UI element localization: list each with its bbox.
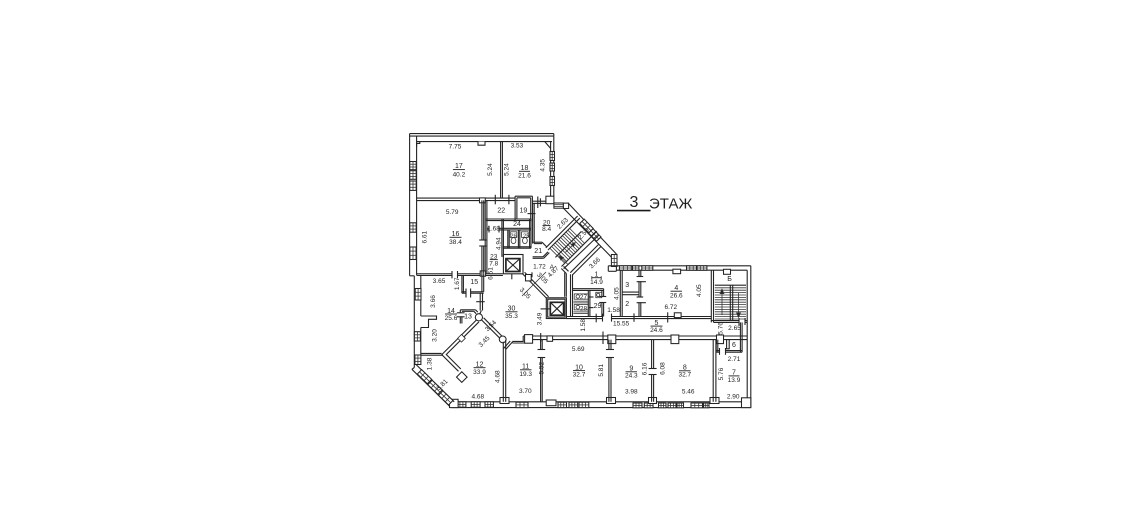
svg-text:24.3: 24.3: [625, 373, 638, 380]
svg-text:3: 3: [630, 194, 639, 211]
svg-text:4.05: 4.05: [696, 284, 703, 297]
svg-text:6: 6: [732, 342, 736, 349]
svg-text:25: 25: [523, 234, 529, 240]
svg-text:3: 3: [625, 282, 629, 289]
svg-text:4.35: 4.35: [540, 159, 547, 172]
svg-text:4.68: 4.68: [495, 370, 502, 383]
svg-text:1.58: 1.58: [607, 307, 620, 314]
svg-text:6.16: 6.16: [641, 362, 648, 375]
svg-text:26.6: 26.6: [670, 292, 683, 299]
svg-text:40.2: 40.2: [453, 171, 466, 178]
svg-text:3.66: 3.66: [430, 295, 437, 308]
svg-text:15.55: 15.55: [613, 321, 630, 328]
svg-text:32.7: 32.7: [573, 372, 586, 379]
svg-text:2.90: 2.90: [727, 393, 740, 400]
svg-text:5.76: 5.76: [718, 322, 725, 335]
svg-text:29: 29: [594, 303, 602, 310]
svg-text:6.72: 6.72: [664, 304, 677, 311]
svg-text:7.75: 7.75: [449, 143, 462, 150]
svg-text:3.05: 3.05: [518, 287, 532, 301]
svg-text:3.98: 3.98: [625, 389, 638, 396]
svg-text:24: 24: [513, 221, 521, 228]
svg-text:13.9: 13.9: [728, 377, 741, 384]
svg-text:3.65: 3.65: [433, 278, 446, 285]
svg-text:28: 28: [580, 306, 588, 313]
svg-text:14.9: 14.9: [590, 279, 603, 286]
svg-text:6.51: 6.51: [488, 267, 495, 280]
svg-text:21.6: 21.6: [518, 173, 531, 180]
svg-text:1.38: 1.38: [426, 357, 433, 370]
svg-text:26: 26: [510, 234, 516, 240]
svg-text:5.69: 5.69: [572, 346, 585, 353]
svg-text:22: 22: [497, 208, 505, 215]
svg-text:4.05: 4.05: [613, 287, 620, 300]
svg-text:5.79: 5.79: [446, 209, 459, 216]
svg-text:1.67: 1.67: [454, 277, 461, 290]
svg-text:5.52: 5.52: [538, 361, 545, 374]
svg-text:2.65: 2.65: [728, 325, 741, 332]
svg-text:3.53: 3.53: [511, 143, 524, 150]
svg-text:1.58: 1.58: [580, 319, 587, 332]
svg-text:7.8: 7.8: [489, 260, 498, 267]
svg-text:5.24: 5.24: [504, 163, 511, 176]
svg-text:24.6: 24.6: [650, 327, 663, 334]
svg-text:17: 17: [455, 163, 463, 170]
svg-text:13: 13: [464, 314, 472, 321]
svg-text:21: 21: [534, 248, 542, 255]
svg-text:35.3: 35.3: [505, 313, 518, 320]
svg-text:32.7: 32.7: [678, 372, 691, 379]
svg-text:19: 19: [520, 207, 528, 214]
svg-text:5.81: 5.81: [598, 364, 605, 377]
svg-text:2: 2: [625, 301, 629, 308]
svg-text:16: 16: [452, 231, 460, 238]
svg-text:3.66: 3.66: [588, 256, 602, 270]
svg-text:Б: Б: [727, 276, 732, 283]
svg-text:1.72: 1.72: [533, 264, 546, 271]
svg-text:6.08: 6.08: [660, 362, 667, 375]
svg-text:3.70: 3.70: [519, 388, 532, 395]
svg-text:ЭТАЖ: ЭТАЖ: [649, 196, 692, 213]
svg-text:3.45: 3.45: [478, 335, 492, 349]
svg-text:38.4: 38.4: [449, 239, 462, 246]
svg-text:19.3: 19.3: [519, 371, 532, 378]
svg-text:3.49: 3.49: [537, 312, 544, 325]
svg-text:1.68: 1.68: [487, 225, 500, 232]
svg-text:4.94: 4.94: [496, 237, 503, 250]
svg-text:3.20: 3.20: [432, 329, 439, 342]
svg-text:33.9: 33.9: [473, 369, 486, 376]
svg-text:18: 18: [521, 165, 529, 172]
svg-text:15: 15: [470, 279, 478, 286]
svg-text:27: 27: [580, 294, 588, 301]
svg-text:2.63: 2.63: [556, 216, 570, 230]
svg-text:2.71: 2.71: [728, 356, 741, 363]
svg-text:25.6: 25.6: [445, 315, 458, 322]
svg-text:6.61: 6.61: [421, 230, 428, 243]
svg-text:8.4: 8.4: [542, 226, 551, 233]
svg-text:4.68: 4.68: [471, 393, 484, 400]
svg-text:5.76: 5.76: [718, 367, 725, 380]
svg-text:5.24: 5.24: [487, 163, 494, 176]
svg-text:5.46: 5.46: [682, 389, 695, 396]
